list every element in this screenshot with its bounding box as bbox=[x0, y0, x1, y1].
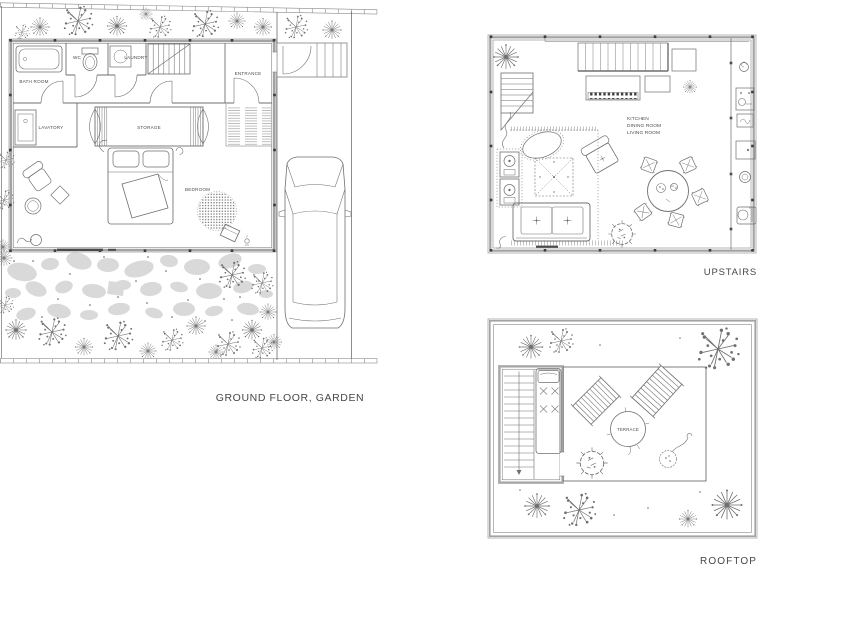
speakers bbox=[500, 152, 519, 205]
staircase-upstairs bbox=[501, 73, 533, 130]
bath-room-label: BATH ROOM bbox=[19, 79, 48, 84]
upstairs-caption: UPSTAIRS bbox=[704, 267, 757, 278]
rooftop-plan: TERRACE ROOFTOP bbox=[488, 319, 757, 567]
staircase-rooftop bbox=[499, 366, 565, 484]
tree-icon bbox=[254, 18, 272, 36]
tree-icon bbox=[259, 303, 276, 320]
doors bbox=[41, 75, 259, 103]
round-side-table bbox=[25, 198, 41, 214]
side-table-diamond bbox=[51, 186, 69, 204]
rooftop-plants bbox=[576, 433, 692, 478]
tree-icon bbox=[0, 296, 14, 313]
tree-icon bbox=[161, 329, 183, 351]
bedroom-plant bbox=[198, 192, 237, 231]
tree-icon bbox=[322, 20, 341, 39]
tree-icon bbox=[266, 334, 282, 350]
tree-icon bbox=[216, 331, 241, 356]
floor-marker bbox=[245, 236, 249, 246]
bench bbox=[536, 369, 561, 454]
wardrobe-hatch bbox=[226, 104, 272, 146]
rooftop-caption: ROOFTOP bbox=[700, 556, 757, 567]
living-room-label: LIVING ROOM bbox=[627, 130, 660, 136]
kitchen-label: KITCHEN bbox=[627, 116, 649, 122]
window-sill bbox=[57, 249, 103, 251]
staircase-ground bbox=[148, 44, 190, 74]
bedside-squiggle bbox=[100, 140, 184, 154]
sofa bbox=[513, 203, 590, 241]
tree-icon bbox=[0, 151, 15, 168]
dining-chair bbox=[678, 156, 698, 174]
dining-chair bbox=[633, 202, 653, 222]
bathtub bbox=[16, 46, 62, 72]
dining-chair bbox=[691, 187, 709, 207]
tree-icon bbox=[104, 321, 133, 351]
bed bbox=[108, 148, 173, 224]
wc-label: WC bbox=[73, 55, 82, 60]
tree-icon bbox=[30, 17, 49, 36]
tree-icon bbox=[679, 510, 697, 528]
upstairs-plan: KITCHEN DINING ROOM LIVING ROOM UPSTAIRS bbox=[488, 35, 757, 278]
tree-icon bbox=[549, 328, 574, 353]
tree-icon bbox=[698, 327, 740, 369]
tree-icon bbox=[149, 16, 171, 38]
toilet bbox=[82, 48, 98, 71]
site-fence-bottom bbox=[0, 359, 377, 363]
lavatory-sink bbox=[15, 110, 36, 145]
zone-dashes bbox=[497, 127, 623, 246]
tree-icon bbox=[209, 345, 224, 359]
tree-icon bbox=[493, 44, 519, 69]
kitchen-island bbox=[645, 76, 670, 92]
ground-floor-plan: BATH ROOM WC LAUNDRY ENTRANCE LAVATORY S… bbox=[0, 3, 377, 404]
entrance-porch bbox=[273, 43, 347, 77]
laundry-label: LAUNDRY bbox=[124, 55, 147, 60]
dining-chair bbox=[639, 156, 658, 174]
dining-table bbox=[648, 171, 689, 212]
tree-icon bbox=[64, 6, 93, 36]
bedroom-label: BEDROOM bbox=[185, 187, 210, 192]
tree-icon bbox=[524, 493, 550, 518]
bedroom-armchair bbox=[22, 160, 54, 193]
floor-plans-drawing: BATH ROOM WC LAUNDRY ENTRANCE LAVATORY S… bbox=[0, 0, 850, 637]
garden-stones bbox=[5, 249, 273, 322]
terrace-label: TERRACE bbox=[617, 427, 639, 432]
tree-icon bbox=[5, 319, 26, 340]
tree-icon bbox=[285, 15, 308, 38]
tree-icon bbox=[38, 317, 66, 345]
dining-chair bbox=[667, 212, 685, 229]
tree-icon bbox=[519, 335, 544, 359]
window-sill bbox=[108, 249, 116, 251]
tree-icon bbox=[242, 320, 262, 340]
cable-squiggle bbox=[496, 112, 511, 248]
rug bbox=[535, 158, 573, 196]
kitchen-counter bbox=[578, 43, 696, 71]
tree-icon bbox=[563, 493, 596, 526]
tree-icon bbox=[192, 10, 219, 37]
tree-icon bbox=[711, 489, 742, 519]
piano bbox=[586, 76, 640, 100]
dining-room-label: DINING ROOM bbox=[627, 123, 661, 129]
tree-icon bbox=[251, 272, 273, 294]
ground-floor-caption: GROUND FLOOR, GARDEN bbox=[216, 392, 365, 404]
storage-label: STORAGE bbox=[137, 125, 161, 130]
tree-icon bbox=[75, 338, 93, 356]
lavatory-label: LAVATORY bbox=[39, 125, 64, 130]
flower-icon bbox=[683, 80, 697, 93]
wall-posts bbox=[490, 36, 754, 252]
tree-icon bbox=[15, 24, 30, 39]
lounge-chair bbox=[630, 364, 684, 419]
threshold bbox=[536, 246, 558, 248]
tree-icon bbox=[252, 337, 273, 358]
tree-icon bbox=[186, 316, 205, 335]
car bbox=[279, 157, 351, 328]
tree-icon bbox=[228, 12, 245, 29]
tree-icon bbox=[107, 16, 127, 36]
tree-icon bbox=[139, 342, 156, 359]
floor-lamp bbox=[17, 235, 42, 246]
floor-plan-sheet: BATH ROOM WC LAUNDRY ENTRANCE LAVATORY S… bbox=[0, 0, 850, 637]
site-fence-top bbox=[0, 3, 377, 14]
entrance-label: ENTRANCE bbox=[235, 71, 262, 76]
armchair bbox=[580, 135, 620, 175]
